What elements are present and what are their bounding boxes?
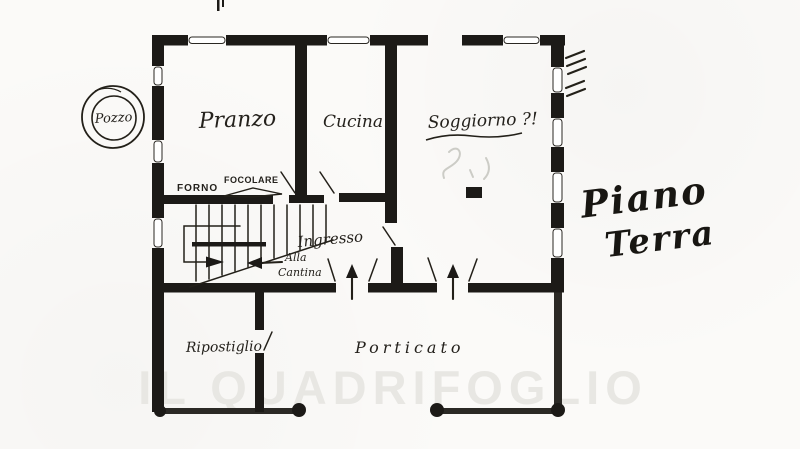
door-swing (281, 172, 295, 193)
window-right-1 (551, 67, 564, 93)
pranzo-label: Pranzo (197, 106, 276, 134)
wall-middle-left (152, 283, 336, 293)
erased-scribble (443, 149, 489, 179)
corner-post (154, 405, 166, 417)
wall-ripostiglio-upper (255, 292, 264, 330)
window-top-2 (327, 35, 370, 46)
window-right-3 (551, 172, 564, 203)
cucina-label: Cucina (323, 112, 383, 132)
entry-arrowhead (447, 264, 459, 278)
window-right-4 (551, 228, 564, 258)
corner-post (551, 403, 565, 417)
soggiorno-label: Soggiorno ?! (427, 109, 538, 133)
stove-symbol (466, 187, 482, 198)
floor-plan-scan: IL QUADRIFOGLIO (0, 0, 800, 449)
cantina-arrow-line (260, 262, 282, 263)
soggiorno-extras (426, 133, 522, 198)
scan-artifacts (217, 0, 224, 11)
windows (152, 35, 564, 258)
floor-plan-drawing: IL QUADRIFOGLIO (0, 0, 800, 449)
door-swing (264, 332, 272, 350)
porticato-label: Porticato (354, 338, 465, 357)
window-left-3 (152, 218, 164, 248)
wall-divider-foot (289, 195, 324, 203)
window-top-1 (188, 35, 226, 46)
wall-right-lower (554, 292, 562, 412)
wall-middle-right (468, 283, 564, 293)
entry-arrowhead (346, 264, 358, 278)
wall-bottom-left (155, 408, 300, 414)
wall-bottom-right (434, 408, 561, 414)
porch-post (292, 403, 306, 417)
stair-landing-line (192, 242, 266, 247)
door-swing (428, 258, 436, 281)
alla-cantina-label-line2: Cantina (278, 266, 322, 279)
door-swing (469, 259, 477, 281)
window-left-1 (152, 66, 164, 86)
window-right-2 (551, 118, 564, 147)
porch-post (430, 403, 444, 417)
ingresso-label: Ingresso (296, 227, 364, 251)
wall-cucina-bottom (339, 193, 391, 202)
ripostiglio-label: Ripostiglio (185, 339, 262, 356)
wall-ripostiglio-lower (255, 353, 264, 412)
door-swing (383, 227, 395, 245)
soggiorno-underline (426, 133, 522, 140)
window-top-3 (503, 35, 540, 46)
focolare-label: FOCOLARE (224, 175, 279, 185)
alla-cantina-label-line1: Alla (284, 251, 307, 264)
forno-label: FORNO (177, 183, 218, 194)
wall-pranzo-cucina (295, 45, 307, 195)
pozzo-label: Pozzo (93, 110, 132, 127)
exterior-hatch-marks (566, 51, 586, 96)
door-swing (320, 172, 334, 193)
door-swing (369, 259, 377, 281)
sheet-title: Piano Terra (577, 167, 717, 268)
window-left-2 (152, 140, 164, 163)
watermark-text: IL QUADRIFOGLIO (138, 361, 648, 414)
wall-ingresso-stub (391, 247, 403, 292)
door-swing (328, 259, 335, 281)
